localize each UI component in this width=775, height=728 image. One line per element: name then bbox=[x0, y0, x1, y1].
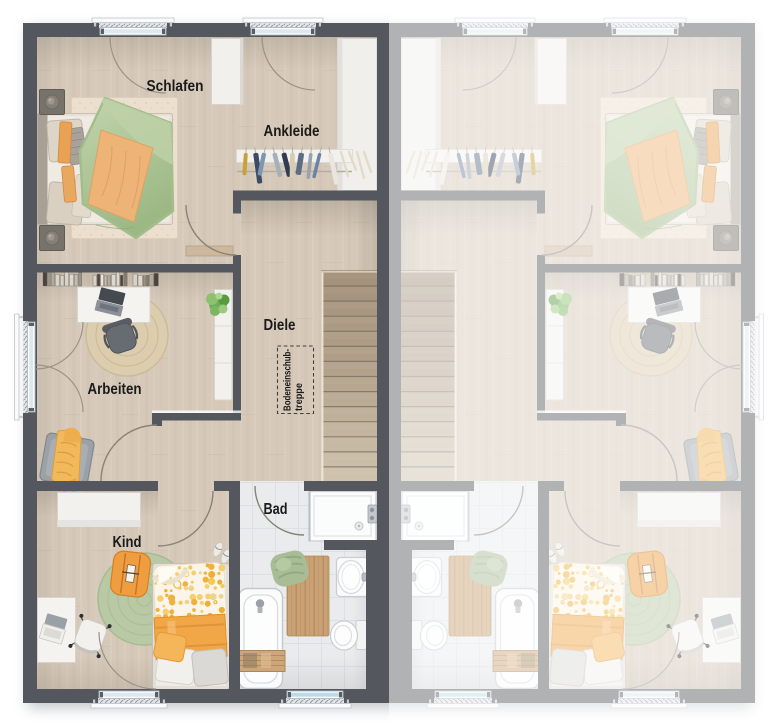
svg-text:Arbeiten: Arbeiten bbox=[88, 381, 142, 398]
svg-text:Ankleide: Ankleide bbox=[264, 123, 320, 140]
svg-text:treppe: treppe bbox=[294, 383, 305, 411]
svg-text:Kind: Kind bbox=[113, 534, 142, 551]
svg-text:Bad: Bad bbox=[264, 501, 288, 518]
svg-text:Diele: Diele bbox=[264, 317, 296, 334]
svg-text:Bodeneinschub-: Bodeneinschub- bbox=[283, 349, 294, 411]
svg-text:Schlafen: Schlafen bbox=[147, 78, 204, 95]
